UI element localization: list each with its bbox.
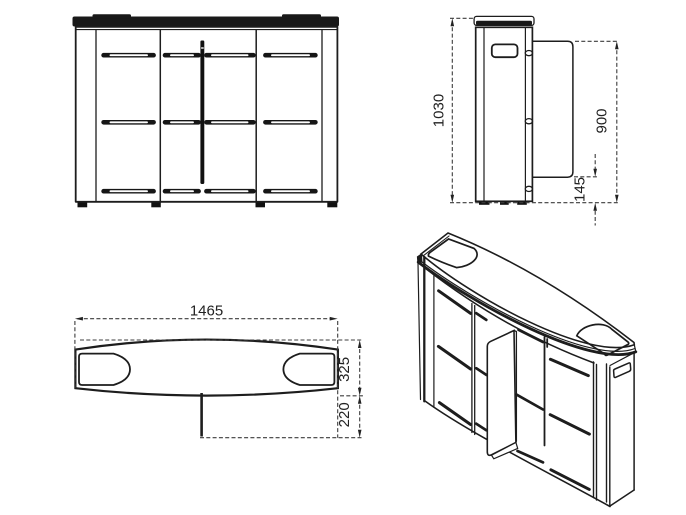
svg-text:900: 900 (594, 108, 611, 133)
svg-text:325: 325 (336, 357, 353, 382)
svg-text:220: 220 (336, 402, 353, 427)
svg-text:1465: 1465 (190, 302, 223, 319)
svg-text:1030: 1030 (431, 94, 448, 127)
svg-text:145: 145 (572, 177, 589, 202)
